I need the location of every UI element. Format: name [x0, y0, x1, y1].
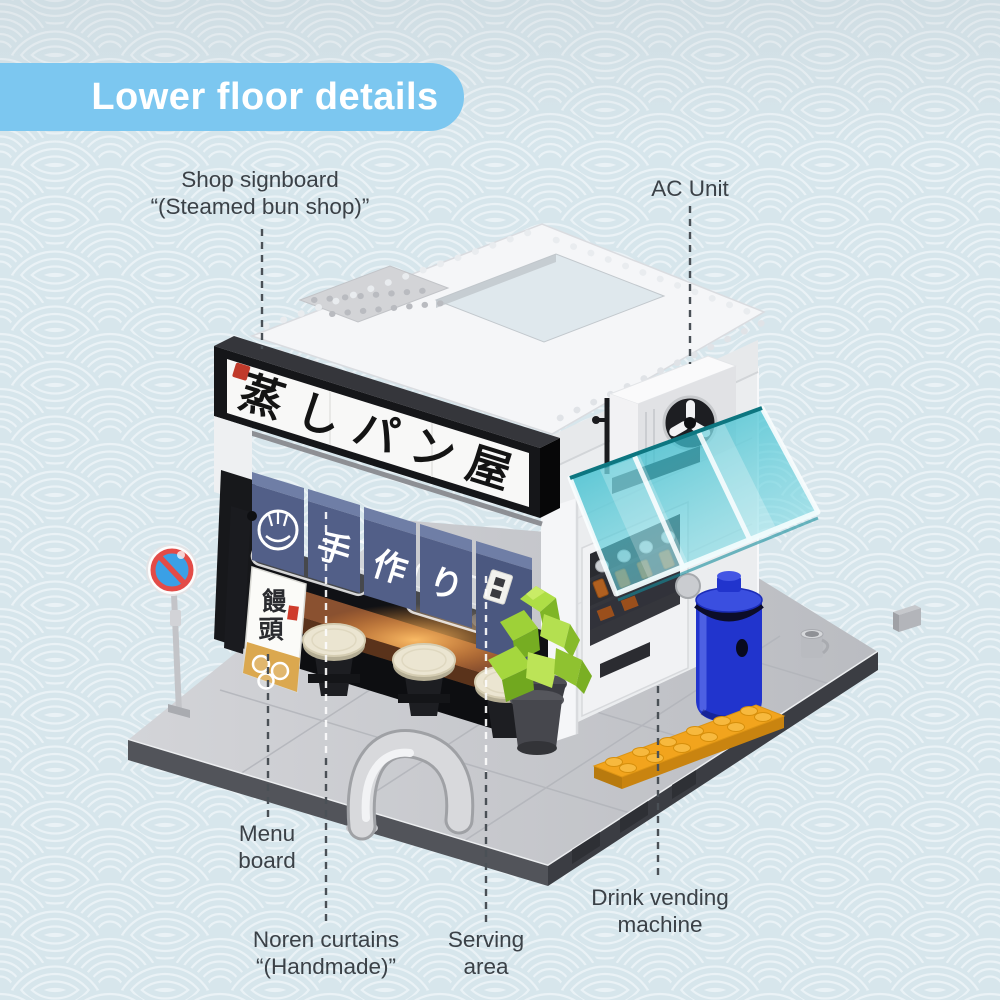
callout-shop-signboard: Shop signboard “(Steamed bun shop)” [100, 166, 420, 221]
scene-illustration: 蒸 し パ ン 屋 [0, 0, 1000, 1000]
title-banner: Lower floor details [0, 63, 464, 131]
callout-line: “(Handmade)” [212, 953, 440, 980]
callout-line: Drink vending [572, 884, 748, 911]
svg-text:頭: 頭 [258, 615, 284, 644]
barrel-hole [736, 639, 748, 657]
callout-noren-curtains: Noren curtains “(Handmade)” [212, 926, 440, 981]
callout-line: board [197, 847, 337, 874]
callout-line: AC Unit [610, 175, 770, 202]
callout-ac-unit: AC Unit [610, 175, 770, 202]
wall-knob [676, 574, 700, 598]
callout-line: area [424, 953, 548, 980]
callout-line: Noren curtains [212, 926, 440, 953]
callout-serving-area: Serving area [424, 926, 548, 981]
menu-board-text: 饅 頭 [258, 587, 287, 644]
menu-red-tag [287, 605, 299, 620]
callout-line: Serving [424, 926, 548, 953]
callout-line: “(Steamed bun shop)” [100, 193, 420, 220]
callout-drink-vending-machine: Drink vending machine [572, 884, 748, 939]
blue-barrel [696, 571, 762, 722]
title-banner-text: Lower floor details [91, 76, 438, 119]
callout-line: machine [572, 911, 748, 938]
svg-text:饅: 饅 [261, 587, 287, 616]
callout-line: Shop signboard [100, 166, 420, 193]
callout-line: Menu [197, 820, 337, 847]
callout-menu-board: Menu board [197, 820, 337, 875]
